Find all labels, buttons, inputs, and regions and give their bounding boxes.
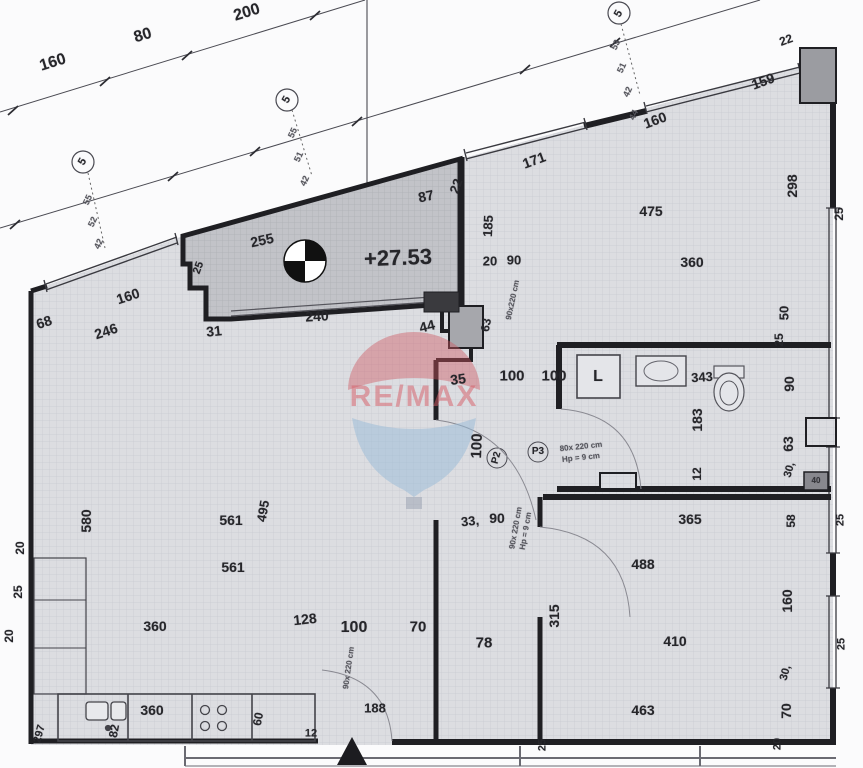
wall-jog [806,418,836,446]
corner-pillar [800,48,836,103]
wall-notch [600,473,636,489]
duct-box [804,472,828,490]
floor-plan-image: 1608020055555524255514253514244682461603… [0,0,863,768]
elevation-marker-icon [284,240,326,282]
floor-plan-svg [0,0,863,768]
washing-machine-icon [577,355,620,398]
bathroom-sink-icon [636,356,686,386]
wall-block [424,292,459,312]
toilet-icon [714,366,744,411]
